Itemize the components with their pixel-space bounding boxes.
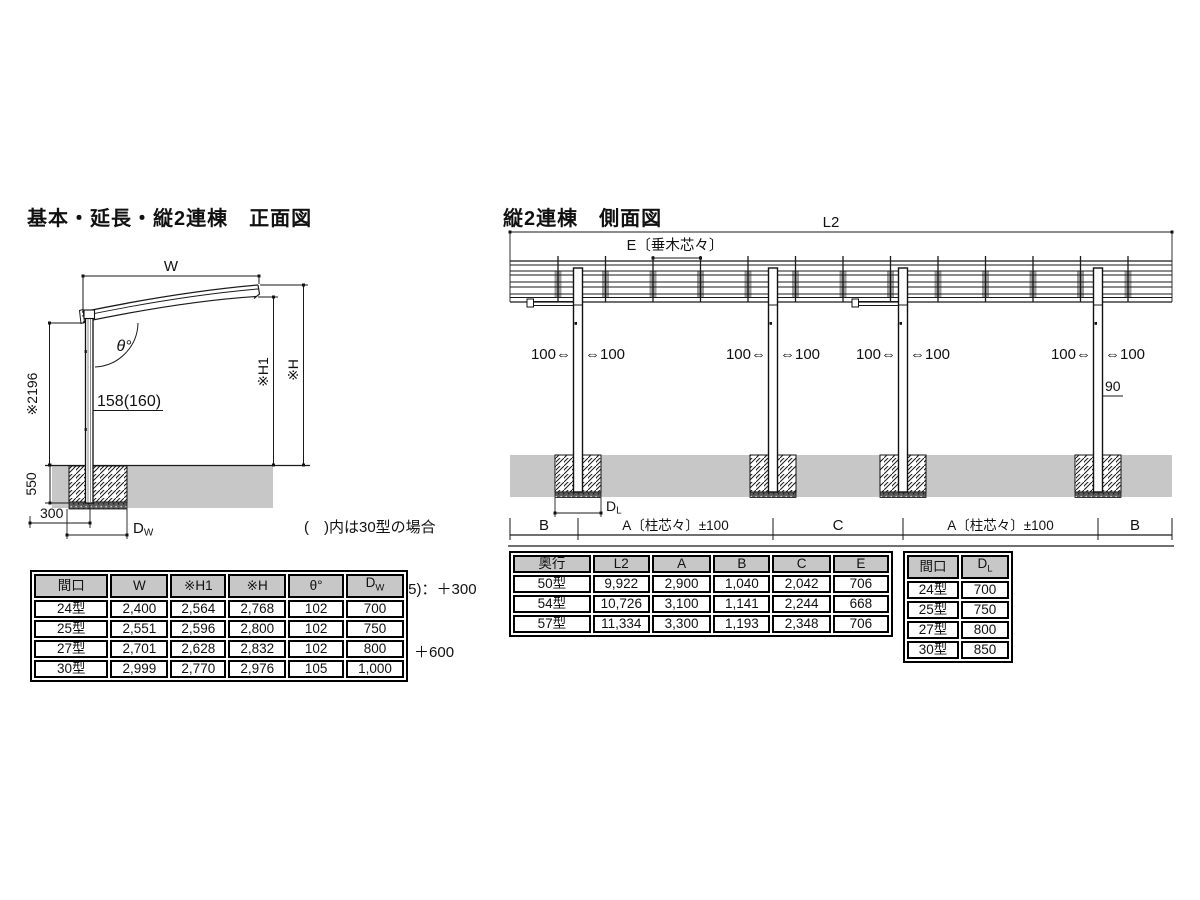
front-post [84,310,95,503]
side-roof [510,256,1172,302]
cell: 24型 [34,600,108,618]
dim-h-label: ※H [285,359,301,381]
col-header: B [713,555,770,573]
table-header-row: 奥行 L2 A B C E [513,555,889,573]
cell: 2,042 [772,575,830,593]
cell: 700 [961,581,1009,599]
table-row: 54型 10,726 3,100 1,141 2,244 668 [513,595,889,613]
cell: 24型 [907,581,959,599]
dim-dw-label: DW [133,520,154,539]
cell: 105 [288,660,344,678]
dim-l2-label: L2 [823,214,840,231]
cell: 2,999 [110,660,168,678]
table-row: 25型 2,551 2,596 2,800 102 750 [34,620,404,638]
dim-post-section-label: 158(160) [97,393,161,410]
table-row: 27型 800 [907,621,1009,639]
carport-spec-sheet: { "front_view": { "title": "基本・延長・縦2連棟 正… [0,0,1200,900]
cell: 54型 [513,595,591,613]
cell: 1,141 [713,595,770,613]
col-header: C [772,555,830,573]
note-line-1: ( )内は30型の場合 [304,518,477,539]
dim-dw: DW [66,509,154,539]
span-c-label: C [833,517,844,534]
col-header: θ° [288,574,344,598]
col-header: L2 [593,555,650,573]
dim-dl-label: DL [606,498,622,517]
dim-dl: DL [554,498,623,517]
col-header: 間口 [34,574,108,598]
bottom-dimension-chain: B A〔柱芯々〕±100 C A〔柱芯々〕±100 B [508,517,1174,546]
cell: 25型 [34,620,108,638]
dim-rafter-pitch-label: E〔垂木芯々〕 [627,237,724,254]
front-view-title: 基本・延長・縦2連棟 正面図 [27,202,312,231]
offset-left-label: 100⇔ [856,346,896,363]
cell: 102 [288,640,344,658]
width-spec-table: 間口 W ※H1 ※H θ° DW 24型 2,400 2,564 2,768 … [30,570,408,682]
offset-right-label: ⇔100 [585,346,625,363]
cell: 30型 [907,641,959,659]
dim-foundation-depth-label: 550 [23,472,39,496]
dim-w: W [82,258,261,310]
col-header: E [833,555,889,573]
offset-left-label: 100⇔ [726,346,766,363]
cell: 2,800 [228,620,286,638]
front-foundation [69,466,127,509]
offset-right-label: ⇔100 [910,346,950,363]
table-header-row: 間口 DL [907,555,1009,579]
cell: 1,040 [713,575,770,593]
span-a-label: A〔柱芯々〕±100 [947,518,1053,533]
col-header: DL [961,555,1009,579]
table-row: 24型 700 [907,581,1009,599]
dim-footing-offset-label: 300 [40,505,64,521]
offset-right-label: ⇔100 [1105,346,1145,363]
side-ground [510,455,1172,497]
front-roof-angle: θ° [95,323,138,367]
dim-post-height: ※2196 [24,322,84,467]
span-b-label: B [1130,517,1140,534]
cell: 2,768 [228,600,286,618]
offset-left-label: 100⇔ [531,346,571,363]
table-row: 57型 11,334 3,300 1,193 2,348 706 [513,615,889,633]
table-row: 30型 850 [907,641,1009,659]
cell: 9,922 [593,575,650,593]
cell: 1,193 [713,615,770,633]
dim-h1-label: ※H1 [255,357,271,387]
col-header: W [110,574,168,598]
span-b-label: B [539,517,549,534]
cell: 2,564 [170,600,226,618]
cell: 2,900 [652,575,711,593]
cell: 2,976 [228,660,286,678]
cell: 1,000 [346,660,404,678]
cell: 2,701 [110,640,168,658]
col-header: 奥行 [513,555,591,573]
cell: 700 [346,600,404,618]
cell: 2,596 [170,620,226,638]
theta-label: θ° [116,338,132,355]
table-header-row: 間口 W ※H1 ※H θ° DW [34,574,404,598]
cell: 3,300 [652,615,711,633]
col-header: ※H1 [170,574,226,598]
post-offset-labels: 100⇔ ⇔100 100⇔ ⇔100 100⇔ ⇔100 100⇔ ⇔100 [531,346,1145,363]
cell: 668 [833,595,889,613]
depth-spec-table: 奥行 L2 A B C E 50型 9,922 2,900 1,040 2,04… [509,551,893,637]
offset-left-label: 100⇔ [1051,346,1091,363]
cell: 3,100 [652,595,711,613]
table-row: 24型 2,400 2,564 2,768 102 700 [34,600,404,618]
cell: 25型 [907,601,959,619]
dim-post-height-label: ※2196 [24,372,40,415]
dim-post-section: 158(160) [93,393,163,411]
front-roof-panel [80,285,260,324]
cell: 2,628 [170,640,226,658]
cell: 2,832 [228,640,286,658]
cell: 706 [833,575,889,593]
col-header: DW [346,574,404,598]
table-row: 25型 750 [907,601,1009,619]
cell: 800 [961,621,1009,639]
table-row: 50型 9,922 2,900 1,040 2,042 706 [513,575,889,593]
table-row: 30型 2,999 2,770 2,976 105 1,000 [34,660,404,678]
cell: 50型 [513,575,591,593]
frontage-dl-table: 間口 DL 24型 700 25型 750 27型 800 30型 850 [903,551,1013,663]
dim-eave-edge-label: 90 [1105,378,1121,394]
dim-eave-edge: 90 [1103,378,1124,396]
cell: 850 [961,641,1009,659]
cell: 2,348 [772,615,830,633]
cell: 10,726 [593,595,650,613]
dim-w-label: W [164,258,179,275]
cell: 11,334 [593,615,650,633]
cell: 2,551 [110,620,168,638]
cell: 27型 [907,621,959,639]
span-a-label: A〔柱芯々〕±100 [622,518,728,533]
cell: 750 [346,620,404,638]
cell: 750 [961,601,1009,619]
offset-right-label: ⇔100 [780,346,820,363]
cell: 2,400 [110,600,168,618]
col-header: A [652,555,711,573]
col-header: ※H [228,574,286,598]
side-elevation-drawing: L2 E〔垂木芯々〕 [500,210,1185,550]
dim-rafter-pitch: E〔垂木芯々〕 [627,237,724,267]
cell: 706 [833,615,889,633]
dim-h1: ※H1 [255,296,278,467]
col-header: 間口 [907,555,959,579]
cell: 800 [346,640,404,658]
table-row: 27型 2,701 2,628 2,832 102 800 [34,640,404,658]
cell: 2,244 [772,595,830,613]
cell: 30型 [34,660,108,678]
cell: 102 [288,620,344,638]
cell: 102 [288,600,344,618]
cell: 2,770 [170,660,226,678]
cell: 27型 [34,640,108,658]
cell: 57型 [513,615,591,633]
